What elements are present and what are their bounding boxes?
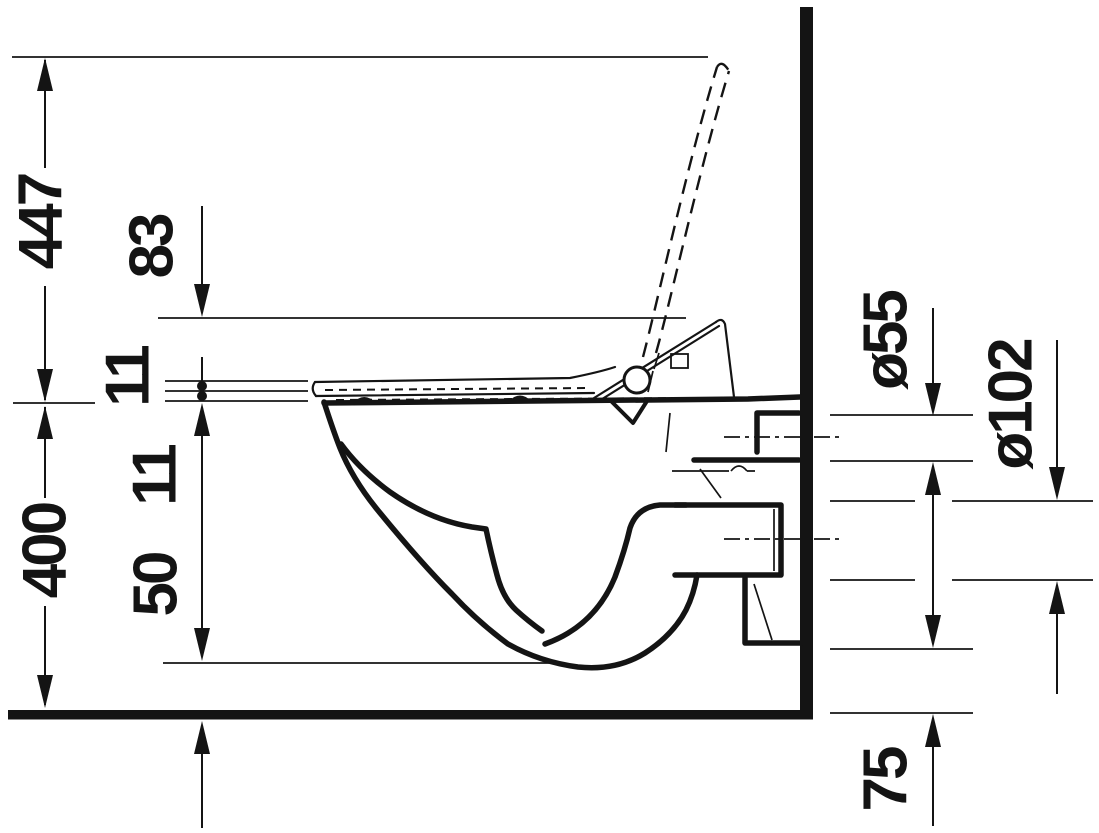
- trap-pipe-curve: [545, 505, 686, 644]
- dim-11-dot-upper: [197, 381, 207, 391]
- seat-and-lid-closed: [313, 320, 734, 423]
- dim-75-arrow-down: [925, 615, 941, 648]
- dim-400-label: 400: [11, 503, 80, 598]
- dim-447-arrow-down: [37, 369, 53, 402]
- dimension-outlet-clearance: 75: [852, 615, 942, 826]
- dim-50-label: 50: [122, 553, 191, 616]
- wall-section: [800, 7, 813, 719]
- seat-bottom-edge: [316, 393, 594, 396]
- hinge-detail-lines: [648, 353, 659, 392]
- mounting-frame-edge: [672, 466, 755, 471]
- dimension-outlet-diameter: ø102: [977, 340, 1066, 694]
- dim-o55-arrow-down: [925, 383, 941, 416]
- dim-75-label: 75: [852, 747, 921, 811]
- dim-o102-arrow-up: [1049, 581, 1065, 614]
- technical-drawing-sheet: 447 83 11 11 400 50 ø55: [0, 0, 1099, 833]
- outlet-pipe-stub: [675, 505, 781, 575]
- seat-bumper-rear: [509, 396, 531, 402]
- dimension-seat-back-height: 83: [118, 206, 211, 317]
- rear-foot: [745, 578, 801, 643]
- dimension-open-lid-height: 447: [7, 58, 76, 402]
- bowl-inner-profile: [341, 444, 542, 631]
- rear-unit-button: [671, 354, 688, 368]
- dim-447-arrow-up: [37, 58, 53, 91]
- bracket-detail-lines: [666, 413, 721, 498]
- dim-83-label: 83: [118, 214, 187, 278]
- dim-447-label: 447: [7, 174, 76, 269]
- dim-o55-label: ø55: [852, 291, 921, 390]
- dim-83-arrow-down: [194, 284, 210, 317]
- seat-hidden-edge-upper: [325, 388, 588, 390]
- hinge-bracket: [611, 401, 647, 423]
- dim-400-arrow-down: [37, 675, 53, 708]
- dim-o102-arrow-down: [1049, 467, 1065, 500]
- dim-11-arrow-up: [194, 403, 210, 436]
- bowl-outer-profile: [324, 402, 697, 668]
- toilet-elevation-drawing: 447 83 11 11 400 50 ø55: [0, 0, 1099, 833]
- dim-11-lower-label: 11: [121, 445, 190, 506]
- rear-foot-detail-line: [754, 584, 772, 640]
- dimension-bowl-height: 400: [11, 406, 80, 708]
- open-lid-front-edge: [643, 67, 717, 357]
- seat-front-cap: [313, 382, 316, 396]
- dimension-supply-diameter: ø55: [852, 291, 942, 617]
- lid-open-position-dashed: [643, 64, 729, 357]
- dim-400-arrow-up: [37, 406, 53, 439]
- open-lid-back-edge: [656, 71, 729, 353]
- dim-11-dot-lower: [197, 391, 207, 401]
- hinge-knuckle: [624, 367, 650, 393]
- dimension-seat-thickness: 11 11: [94, 346, 211, 506]
- seat-top-edge: [315, 367, 615, 382]
- open-lid-tip-cap: [717, 64, 729, 71]
- dim-11-upper-label: 11: [94, 346, 163, 407]
- dim-o102-label: ø102: [977, 340, 1046, 470]
- rear-unit-back-edge: [716, 320, 734, 397]
- floor-section: [8, 710, 813, 720]
- dim-50-arrow-down: [194, 628, 210, 661]
